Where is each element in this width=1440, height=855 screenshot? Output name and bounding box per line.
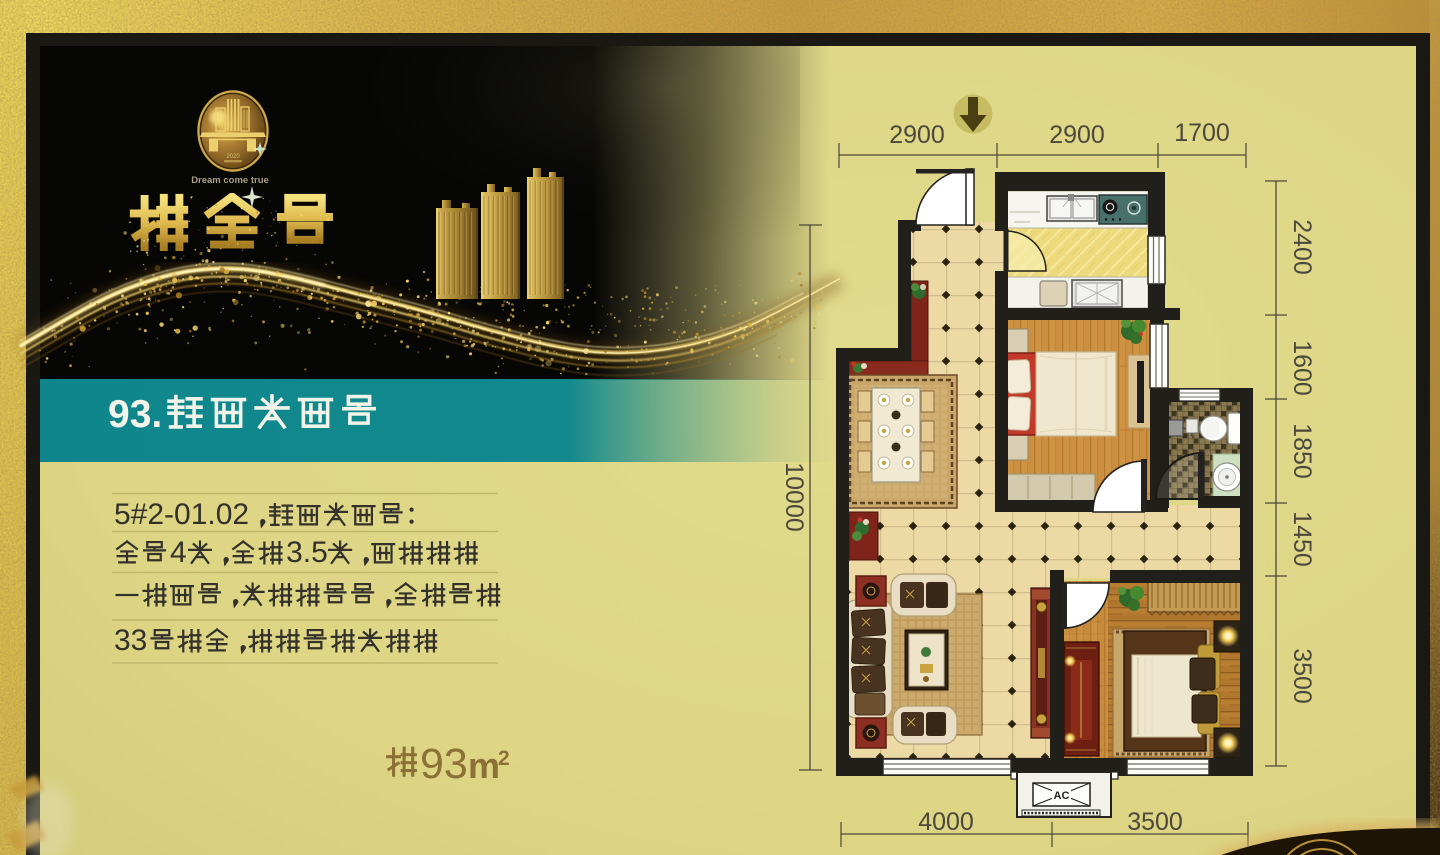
svg-text:4: 4 xyxy=(170,536,187,569)
svg-text:2900: 2900 xyxy=(889,121,945,149)
svg-text:2900: 2900 xyxy=(1049,121,1105,149)
svg-text:93: 93 xyxy=(420,740,468,788)
svg-text:2: 2 xyxy=(498,747,510,770)
svg-text:1850: 1850 xyxy=(1288,423,1316,479)
svg-text:3500: 3500 xyxy=(1288,648,1316,704)
svg-text:2400: 2400 xyxy=(1288,219,1316,275)
svg-text:1700: 1700 xyxy=(1174,119,1230,147)
svg-text:AC: AC xyxy=(1054,790,1070,802)
svg-text:33: 33 xyxy=(114,624,147,657)
svg-text:m: m xyxy=(468,745,500,786)
svg-text:4000: 4000 xyxy=(918,808,974,836)
svg-text:5#2-01.02: 5#2-01.02 xyxy=(114,498,249,531)
svg-text:1600: 1600 xyxy=(1288,340,1316,396)
svg-text:10000: 10000 xyxy=(780,462,808,532)
svg-text:1450: 1450 xyxy=(1288,511,1316,567)
svg-text:3.5: 3.5 xyxy=(286,536,328,569)
svg-text:2020: 2020 xyxy=(226,154,240,160)
svg-text:3500: 3500 xyxy=(1127,808,1183,836)
svg-text:93.: 93. xyxy=(108,393,162,436)
svg-text:Dream come true: Dream come true xyxy=(191,175,269,186)
